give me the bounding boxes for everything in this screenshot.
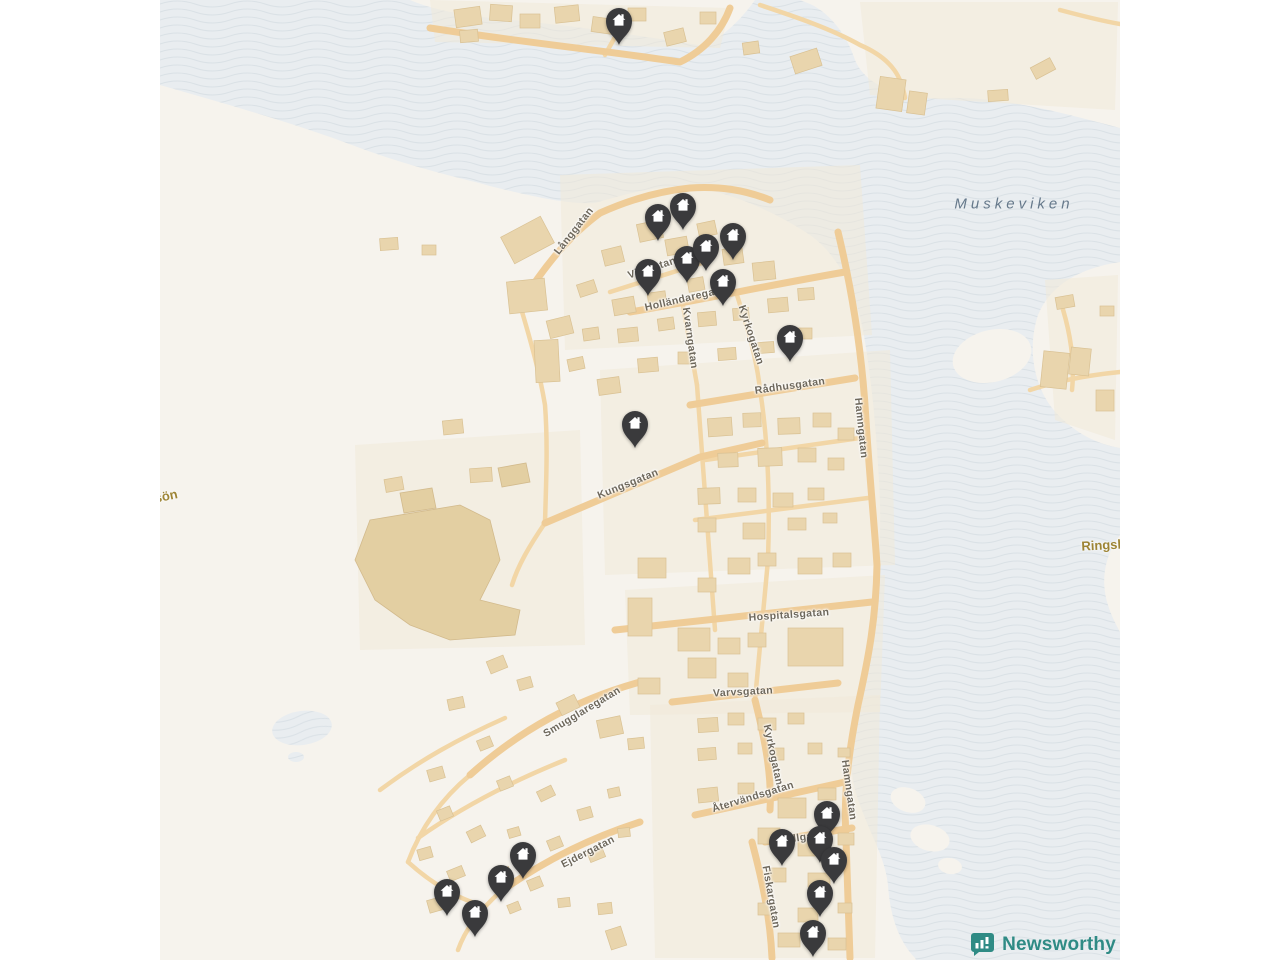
listing-marker[interactable] bbox=[767, 827, 797, 867]
letterbox-left bbox=[0, 0, 160, 960]
newsworthy-logo-icon bbox=[970, 932, 995, 957]
listing-marker[interactable] bbox=[718, 221, 748, 261]
map-pin bbox=[775, 323, 805, 363]
listing-marker[interactable] bbox=[604, 6, 634, 46]
map-pin bbox=[460, 898, 490, 938]
listing-marker[interactable] bbox=[798, 918, 828, 958]
letterbox-right bbox=[1120, 0, 1280, 960]
map-pin bbox=[798, 918, 828, 958]
listing-marker[interactable] bbox=[668, 191, 698, 231]
listing-marker[interactable] bbox=[708, 267, 738, 307]
listing-marker[interactable] bbox=[691, 232, 721, 272]
map-page: Muskeviken LånggatanVilagatanHolländareg… bbox=[0, 0, 1280, 960]
map-canvas[interactable]: Muskeviken LånggatanVilagatanHolländareg… bbox=[160, 0, 1120, 960]
map-pin bbox=[767, 827, 797, 867]
listing-marker[interactable] bbox=[633, 257, 663, 297]
map-pin bbox=[432, 877, 462, 917]
map-pin bbox=[633, 257, 663, 297]
listing-marker[interactable] bbox=[620, 409, 650, 449]
map-pin bbox=[691, 232, 721, 272]
map-pin bbox=[668, 191, 698, 231]
map-terrain bbox=[160, 0, 1120, 960]
listing-marker[interactable] bbox=[432, 877, 462, 917]
listing-marker[interactable] bbox=[460, 898, 490, 938]
listing-marker[interactable] bbox=[775, 323, 805, 363]
map-pin bbox=[486, 863, 516, 903]
listing-marker[interactable] bbox=[805, 878, 835, 918]
map-pin bbox=[805, 878, 835, 918]
newsworthy-brand-text: Newsworthy bbox=[1002, 934, 1116, 956]
map-pin bbox=[718, 221, 748, 261]
map-pin bbox=[708, 267, 738, 307]
map-pin bbox=[604, 6, 634, 46]
map-pin bbox=[620, 409, 650, 449]
newsworthy-attribution[interactable]: Newsworthy bbox=[970, 932, 1116, 957]
listing-marker[interactable] bbox=[486, 863, 516, 903]
